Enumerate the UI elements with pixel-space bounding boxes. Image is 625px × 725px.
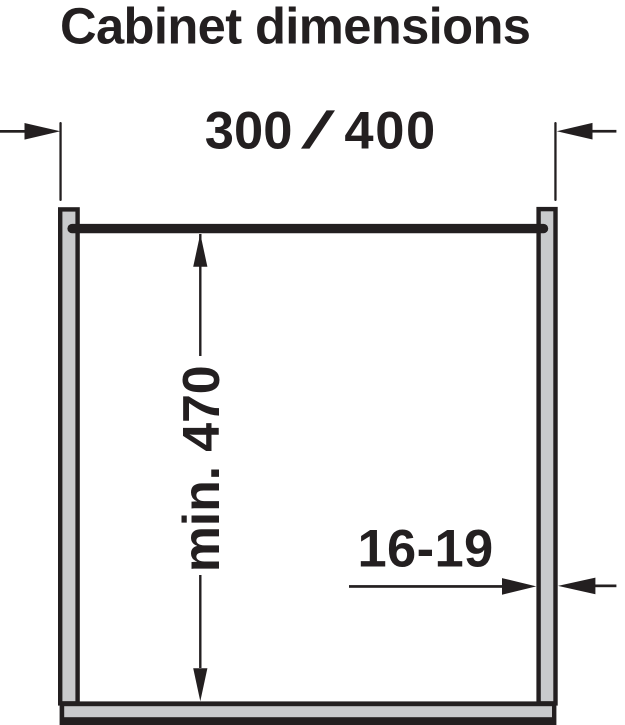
svg-text:16-19: 16-19 [358, 519, 494, 578]
svg-text:min. 470: min. 470 [173, 365, 231, 572]
svg-text:300: 300 [205, 102, 293, 161]
svg-text:400: 400 [344, 102, 435, 161]
svg-text:Cabinet dimensions: Cabinet dimensions [60, 0, 531, 55]
